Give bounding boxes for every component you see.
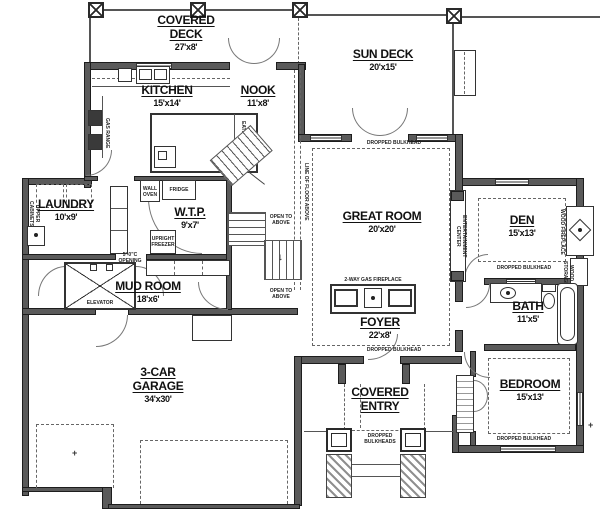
stair-flight-mid bbox=[228, 212, 266, 246]
room-name: LAUNDRY bbox=[28, 198, 104, 212]
window bbox=[577, 392, 583, 426]
stair-flight-lower bbox=[264, 240, 302, 280]
dropped-bulkhead-label: DROPPED BULKHEAD bbox=[354, 140, 434, 146]
upright-freezer-label: UPRIGHT FREEZER bbox=[151, 236, 175, 248]
fridge: FRIDGE bbox=[162, 180, 196, 200]
entry-boundary-dashed bbox=[344, 384, 345, 430]
room-label-sun-deck: SUN DECK 20'x15' bbox=[338, 48, 428, 72]
gas-range-burner bbox=[88, 110, 102, 126]
sink-basin bbox=[139, 69, 152, 80]
room-name: COVERED ENTRY bbox=[346, 386, 414, 414]
entry-pillar-base bbox=[326, 454, 352, 498]
entry-pillar-base bbox=[400, 454, 426, 498]
dishwasher bbox=[118, 68, 132, 82]
room-name: GREAT ROOM bbox=[330, 210, 434, 224]
window bbox=[310, 135, 342, 141]
dimension-tick-icon: + bbox=[72, 448, 77, 458]
room-dims: 27'x8' bbox=[148, 42, 224, 52]
window bbox=[495, 179, 529, 185]
cabinet-shelf-line bbox=[111, 230, 127, 231]
door-swing-arc bbox=[198, 282, 228, 310]
laundry-sink-drain bbox=[34, 233, 38, 237]
room-dims: 11'x8' bbox=[220, 98, 296, 108]
room-name: DEN bbox=[494, 214, 550, 228]
wood-fireplace-label: WOOD FIREPLACE bbox=[559, 208, 565, 256]
wall bbox=[108, 504, 300, 509]
cabinet-shelf-line bbox=[111, 208, 127, 209]
door-swing-arc bbox=[254, 38, 280, 64]
room-name: BATH bbox=[505, 300, 551, 314]
fireplace-cabinet bbox=[334, 289, 358, 307]
wall bbox=[294, 356, 302, 506]
room-name: SUN DECK bbox=[338, 48, 428, 62]
room-name: NOOK bbox=[220, 84, 296, 98]
bench-divider bbox=[174, 261, 175, 275]
deck-column-icon bbox=[88, 2, 104, 18]
ground-line bbox=[304, 431, 326, 432]
deck-rail bbox=[89, 18, 91, 64]
wall bbox=[338, 364, 346, 384]
room-dims: 20'x20' bbox=[330, 224, 434, 234]
open-to-above-label: OPEN TO ABOVE bbox=[264, 214, 298, 226]
wall bbox=[400, 356, 462, 364]
door-swing-arc bbox=[228, 38, 254, 64]
dropped-bulkhead-label: DROPPED BULKHEAD bbox=[492, 436, 556, 442]
room-name: BEDROOM bbox=[488, 378, 572, 392]
bath-sink-drain bbox=[506, 291, 510, 295]
wall-oven-label: WALL OVEN bbox=[141, 186, 159, 198]
dropped-bulkhead-label: DROPPED BULKHEAD bbox=[492, 265, 556, 271]
bathtub-basin bbox=[560, 287, 575, 341]
wall bbox=[455, 330, 463, 352]
room-label-great-room: GREAT ROOM 20'x20' bbox=[330, 210, 434, 234]
room-dims: 18'x6' bbox=[103, 294, 193, 304]
wall bbox=[451, 271, 464, 281]
upright-freezer: UPRIGHT FREEZER bbox=[150, 230, 176, 254]
room-name: MUD ROOM bbox=[103, 280, 193, 294]
garage-door bbox=[140, 440, 288, 504]
room-dims: 15'x13' bbox=[494, 228, 550, 238]
entry-boundary-dashed bbox=[424, 384, 425, 430]
bench-divider bbox=[202, 261, 203, 275]
door-swing-arc bbox=[96, 315, 128, 347]
gas-range-burner bbox=[88, 134, 102, 150]
island-sink-basin bbox=[158, 151, 167, 160]
fridge-label: FRIDGE bbox=[163, 187, 195, 193]
bath-door-arc bbox=[466, 284, 490, 308]
wood-fireplace-dot bbox=[578, 228, 582, 232]
deck-column-icon bbox=[446, 8, 462, 24]
window bbox=[500, 446, 556, 452]
elevator-detail bbox=[106, 264, 113, 271]
room-label-laundry: LAUNDRY 10'x9' bbox=[28, 198, 104, 222]
bedroom-closet bbox=[456, 375, 474, 433]
deck-rail bbox=[300, 14, 452, 16]
open-to-above-label: OPEN TO ABOVE bbox=[264, 288, 298, 300]
room-dims: 20'x15' bbox=[338, 62, 428, 72]
ground-line bbox=[426, 431, 454, 432]
gas-range-label: GAS RANGE bbox=[104, 112, 110, 154]
sun-deck-chimney bbox=[454, 50, 476, 96]
room-label-garage: 3-CAR GARAGE 34'x30' bbox=[126, 366, 190, 404]
sun-deck-chimney-line bbox=[464, 52, 465, 94]
wall bbox=[455, 280, 463, 302]
door-swing-arc bbox=[380, 108, 408, 136]
room-label-mud-room: MUD ROOM 18'x6' bbox=[103, 280, 193, 304]
fireplace-dot bbox=[371, 296, 375, 300]
dropped-bulkheads-label: DROPPED BULKHEADS bbox=[354, 433, 406, 445]
room-dims: 10'x9' bbox=[28, 212, 104, 222]
dropped-bulkhead-label: DROPPED BULKHEAD bbox=[354, 347, 434, 353]
room-name: KITCHEN bbox=[122, 84, 212, 98]
room-label-covered-deck: COVERED DECK 27'x8' bbox=[148, 14, 224, 52]
toilet-tank bbox=[542, 284, 556, 292]
room-label-wtp: W.T.P. 9'x7' bbox=[160, 206, 220, 230]
wall bbox=[128, 308, 298, 315]
room-name: COVERED DECK bbox=[148, 14, 224, 42]
room-dims: 34'x30' bbox=[126, 394, 190, 404]
sink-basin bbox=[154, 69, 167, 80]
room-label-den: DEN 15'x13' bbox=[494, 214, 550, 238]
room-label-kitchen: KITCHEN 15'x14' bbox=[122, 84, 212, 108]
floor-plan: DROPPED BULKHEAD DROPPED BULKHEAD DROPPE… bbox=[0, 0, 600, 514]
room-dims: 15'x13' bbox=[488, 392, 572, 402]
line-of-floor-above-label: LINE OF FLOOR ABOVE bbox=[303, 150, 309, 234]
counter-edge bbox=[102, 96, 103, 158]
elevator-detail bbox=[90, 264, 97, 271]
mudroom-bench bbox=[146, 260, 230, 276]
wall bbox=[402, 364, 410, 384]
wall bbox=[484, 344, 576, 351]
room-name: W.T.P. bbox=[160, 206, 220, 220]
deck-boundary-dashed bbox=[298, 18, 299, 64]
elevator-door-arc bbox=[38, 266, 66, 296]
room-dims: 9'x7' bbox=[160, 220, 220, 230]
closet-door-arc bbox=[474, 380, 488, 396]
laundry-cabinet bbox=[110, 186, 128, 254]
dimension-tick-icon: + bbox=[588, 420, 593, 430]
room-label-foyer: FOYER 22'x8' bbox=[348, 316, 412, 340]
entry-pillar bbox=[326, 428, 352, 452]
entertainment-center-label: ENTERTAINMENT CENTER bbox=[455, 204, 467, 268]
room-dims: 22'x8' bbox=[348, 330, 412, 340]
closet-door-arc bbox=[474, 396, 488, 412]
gas-fireplace-label: 2-WAY GAS FIREPLACE bbox=[340, 277, 406, 283]
door-swing-arc bbox=[352, 108, 380, 136]
room-dims: 15'x14' bbox=[122, 98, 212, 108]
wall bbox=[451, 191, 464, 201]
room-label-bedroom: BEDROOM 15'x13' bbox=[488, 378, 572, 402]
wall bbox=[84, 176, 98, 181]
wall bbox=[296, 356, 364, 364]
room-label-bath: BATH 11'x5' bbox=[505, 300, 551, 324]
entry-step-line bbox=[352, 464, 400, 465]
room-name: FOYER bbox=[348, 316, 412, 330]
entry-pillar bbox=[400, 428, 426, 452]
room-label-nook: NOOK 11'x8' bbox=[220, 84, 296, 108]
deck-rail bbox=[462, 16, 600, 18]
fireplace-cabinet bbox=[388, 289, 412, 307]
room-label-covered-entry: COVERED ENTRY bbox=[346, 386, 414, 414]
closet bbox=[192, 315, 232, 341]
deck-column-icon bbox=[292, 2, 308, 18]
stairs-arrow-icon: ↓ bbox=[278, 252, 283, 263]
wall bbox=[22, 254, 116, 260]
room-dims: 11'x5' bbox=[505, 314, 551, 324]
entry-step-line bbox=[352, 476, 400, 477]
room-name: 3-CAR GARAGE bbox=[126, 366, 190, 394]
wall-oven: WALL OVEN bbox=[140, 180, 160, 202]
